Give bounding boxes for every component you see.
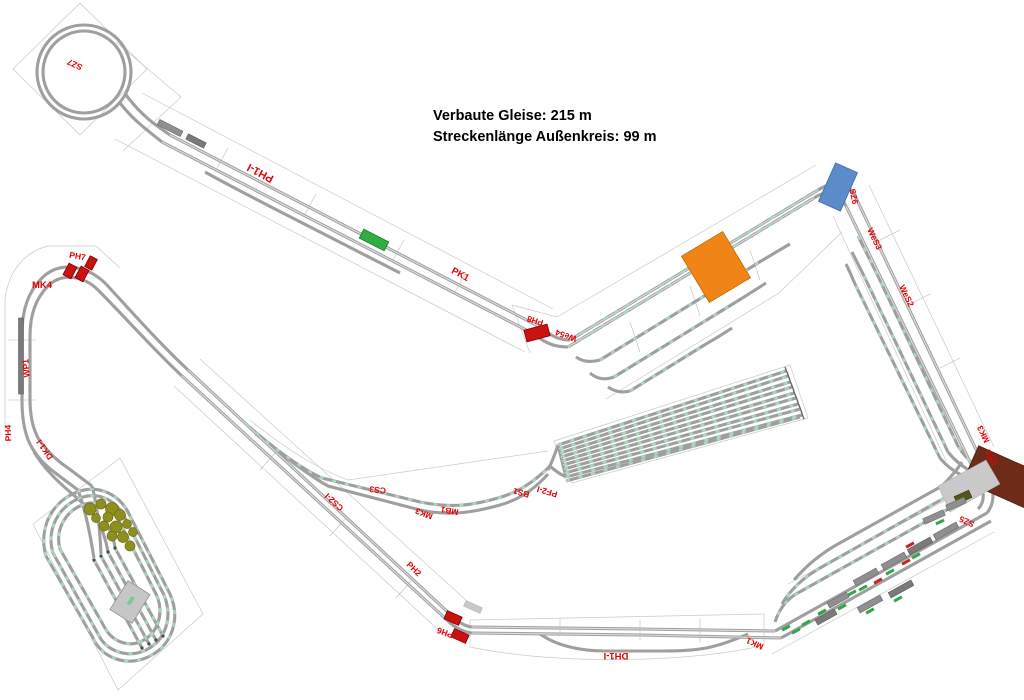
platform-ph6 — [464, 601, 483, 614]
label-sz7: SZ7 — [65, 57, 84, 73]
label-ph7: PH7 — [69, 250, 87, 263]
label-mk3-left: MK3 — [414, 506, 435, 522]
model-railway-track-plan: SZ7 PH1-I PK1 PH8 We54 SZ6 WeS3 WeS2 MK3… — [0, 0, 1024, 700]
label-wes3: WeS3 — [865, 226, 884, 251]
label-dh1-i: DH1-I — [604, 650, 629, 661]
building-ph6-a — [444, 611, 462, 626]
label-mk4: MK4 — [32, 280, 53, 291]
label-sz6: SZ6 — [847, 188, 860, 206]
label-ph8: PH8 — [525, 314, 544, 328]
label-bs1: BS1 — [512, 486, 531, 500]
title-line-1: Verbaute Gleise: 215 m — [433, 108, 592, 124]
label-ph6: PH6 — [435, 625, 454, 640]
track-plan-canvas: SZ7 PH1-I PK1 PH8 We54 SZ6 WeS3 WeS2 MK3… — [0, 0, 1024, 695]
label-ph4: PH4 — [3, 424, 14, 441]
label-pf2-i: PF2-I — [536, 484, 559, 499]
label-mk3-right: MK3 — [975, 424, 992, 445]
title-line-2: Streckenlänge Außenkreis: 99 m — [433, 129, 657, 145]
label-wes2: WeS2 — [897, 283, 916, 308]
label-wp1: WP1 — [20, 358, 32, 377]
train-wp1 — [19, 318, 24, 394]
track-centerlines — [162, 135, 982, 638]
title-block: Verbaute Gleise: 215 m Streckenlänge Auß… — [433, 108, 657, 145]
label-cs3: CS3 — [369, 484, 387, 496]
label-we54: We54 — [554, 327, 578, 344]
tie-markings — [44, 190, 978, 661]
building-ph7-c — [85, 256, 98, 270]
